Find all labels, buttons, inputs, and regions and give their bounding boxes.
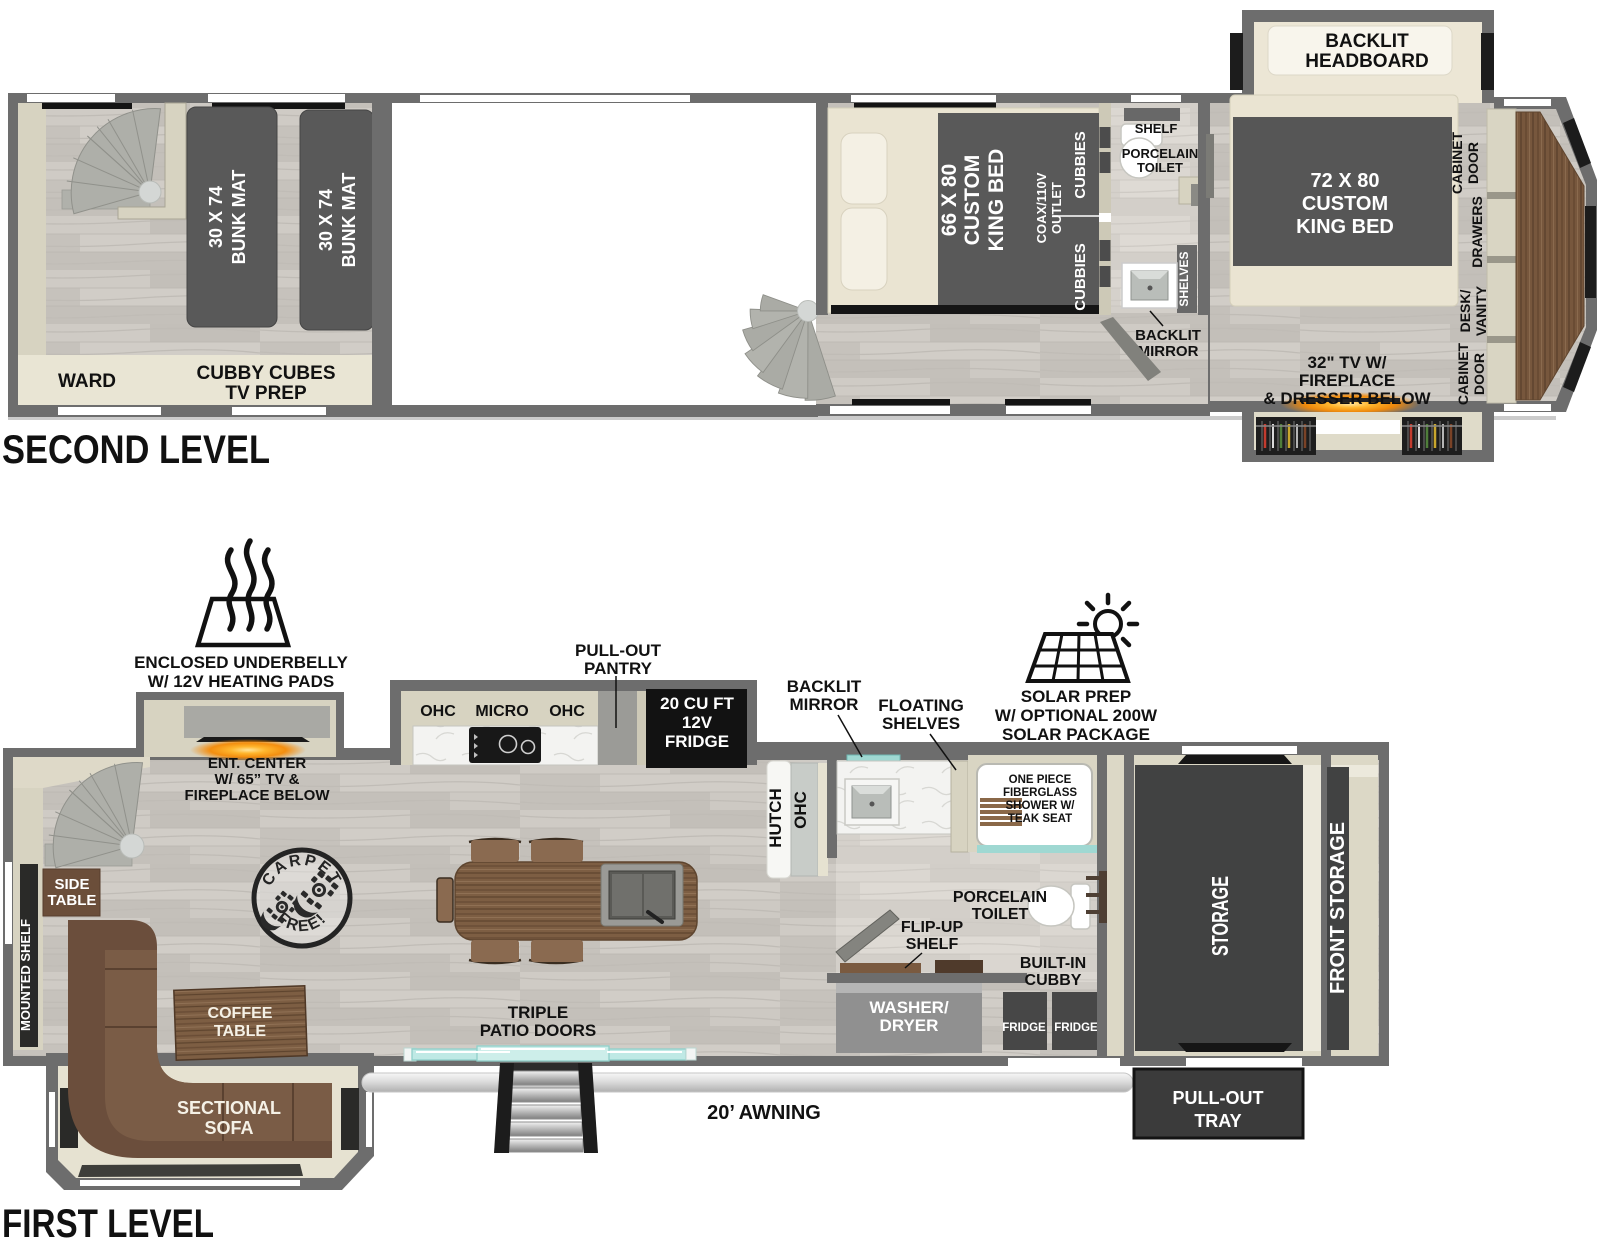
svg-text:SIDE: SIDE: [54, 876, 89, 893]
svg-text:COAX/110V: COAX/110V: [1034, 172, 1049, 243]
svg-text:CUSTOM: CUSTOM: [1302, 193, 1388, 215]
svg-text:TV PREP: TV PREP: [225, 383, 307, 404]
svg-text:SHELF: SHELF: [906, 936, 959, 953]
svg-text:SHELF: SHELF: [1135, 121, 1178, 136]
svg-text:DESK/: DESK/: [1457, 290, 1473, 333]
svg-text:TOILET: TOILET: [1137, 160, 1183, 175]
svg-text:& DRESSER BELOW: & DRESSER BELOW: [1263, 389, 1431, 408]
svg-text:W/ OPTIONAL 200W: W/ OPTIONAL 200W: [995, 706, 1158, 725]
svg-text:FLOATING: FLOATING: [878, 696, 964, 715]
svg-text:TRIPLE: TRIPLE: [508, 1003, 568, 1022]
svg-text:TOILET: TOILET: [972, 906, 1029, 923]
svg-text:SOLAR PREP: SOLAR PREP: [1021, 687, 1132, 706]
svg-text:PANTRY: PANTRY: [584, 659, 653, 678]
svg-text:SHELVES: SHELVES: [1177, 251, 1191, 306]
svg-text:SOFA: SOFA: [204, 1118, 253, 1138]
svg-text:PATIO DOORS: PATIO DOORS: [480, 1021, 597, 1040]
svg-text:CUSTOM: CUSTOM: [961, 155, 984, 246]
svg-text:BUILT-IN: BUILT-IN: [1020, 955, 1086, 972]
svg-text:STORAGE: STORAGE: [1207, 876, 1233, 956]
svg-text:VANITY: VANITY: [1473, 285, 1489, 336]
svg-text:TEAK SEAT: TEAK SEAT: [1008, 813, 1072, 825]
svg-text:CUBBIES: CUBBIES: [1072, 131, 1089, 199]
svg-text:WASHER/: WASHER/: [869, 998, 949, 1017]
svg-text:TRAY: TRAY: [1194, 1111, 1241, 1131]
svg-text:FIBERGLASS: FIBERGLASS: [1003, 787, 1077, 799]
svg-text:PULL-OUT: PULL-OUT: [575, 641, 662, 660]
svg-text:W/ 12V HEATING PADS: W/ 12V HEATING PADS: [148, 672, 334, 691]
svg-text:OUTLET: OUTLET: [1049, 182, 1064, 234]
svg-text:SHOWER W/: SHOWER W/: [1006, 800, 1076, 812]
svg-text:CUBBY CUBES: CUBBY CUBES: [196, 363, 335, 384]
svg-text:FRONT STORAGE: FRONT STORAGE: [1327, 822, 1349, 994]
svg-text:FIRST LEVEL: FIRST LEVEL: [2, 1202, 214, 1241]
svg-text:20 CU FT: 20 CU FT: [660, 694, 734, 713]
svg-text:CUBBY: CUBBY: [1025, 972, 1082, 989]
svg-text:W/ 65” TV &: W/ 65” TV &: [214, 771, 299, 788]
svg-text:DOOR: DOOR: [1471, 353, 1487, 395]
svg-text:ENT. CENTER: ENT. CENTER: [208, 755, 307, 772]
svg-text:DRYER: DRYER: [880, 1016, 939, 1035]
svg-text:32" TV W/: 32" TV W/: [1308, 353, 1387, 372]
svg-text:OHC: OHC: [791, 791, 810, 829]
svg-text:PORCELAIN: PORCELAIN: [1122, 146, 1199, 161]
svg-text:KING BED: KING BED: [985, 149, 1008, 252]
svg-text:MOUNTED SHELF: MOUNTED SHELF: [18, 919, 33, 1031]
svg-text:PULL-OUT: PULL-OUT: [1173, 1088, 1264, 1108]
svg-text:72 X 80: 72 X 80: [1311, 170, 1380, 192]
svg-text:FLIP-UP: FLIP-UP: [901, 919, 964, 936]
svg-text:12V: 12V: [682, 713, 713, 732]
svg-text:FRIDGE: FRIDGE: [665, 732, 729, 751]
svg-text:SHELVES: SHELVES: [882, 714, 960, 733]
svg-text:DRAWERS: DRAWERS: [1469, 196, 1485, 268]
svg-text:BACKLIT: BACKLIT: [1135, 327, 1201, 344]
svg-text:FRIDGE: FRIDGE: [1002, 1022, 1046, 1034]
svg-text:SECTIONAL: SECTIONAL: [177, 1098, 281, 1118]
svg-text:KING BED: KING BED: [1296, 216, 1394, 238]
svg-text:HEADBOARD: HEADBOARD: [1305, 51, 1429, 72]
svg-text:HUTCH: HUTCH: [766, 788, 785, 848]
svg-text:BACKLIT: BACKLIT: [787, 677, 862, 696]
svg-text:20’ AWNING: 20’ AWNING: [707, 1102, 821, 1124]
svg-text:TABLE: TABLE: [48, 892, 97, 909]
svg-text:MICRO: MICRO: [475, 703, 528, 720]
svg-text:BACKLIT: BACKLIT: [1325, 31, 1409, 52]
svg-text:SECOND LEVEL: SECOND LEVEL: [2, 428, 270, 472]
svg-text:ONE PIECE: ONE PIECE: [1009, 774, 1072, 786]
svg-text:TABLE: TABLE: [214, 1023, 266, 1040]
svg-text:DOOR: DOOR: [1465, 142, 1481, 184]
svg-text:66 X 80: 66 X 80: [938, 164, 961, 236]
svg-text:CABINET: CABINET: [1455, 342, 1471, 405]
svg-text:ENCLOSED UNDERBELLY: ENCLOSED UNDERBELLY: [134, 653, 348, 672]
svg-text:FIREPLACE BELOW: FIREPLACE BELOW: [185, 787, 331, 804]
svg-text:MIRROR: MIRROR: [790, 695, 859, 714]
svg-text:PORCELAIN: PORCELAIN: [953, 889, 1047, 906]
svg-text:OHC: OHC: [420, 703, 456, 720]
svg-text:COFFEE: COFFEE: [208, 1005, 273, 1022]
svg-text:SOLAR PACKAGE: SOLAR PACKAGE: [1002, 725, 1150, 744]
svg-text:WARD: WARD: [58, 371, 116, 392]
svg-text:FRIDGE: FRIDGE: [1054, 1022, 1098, 1034]
svg-text:CABINET: CABINET: [1449, 131, 1465, 194]
svg-text:CUBBIES: CUBBIES: [1072, 243, 1089, 311]
svg-text:OHC: OHC: [549, 703, 585, 720]
svg-text:FIREPLACE: FIREPLACE: [1299, 371, 1395, 390]
